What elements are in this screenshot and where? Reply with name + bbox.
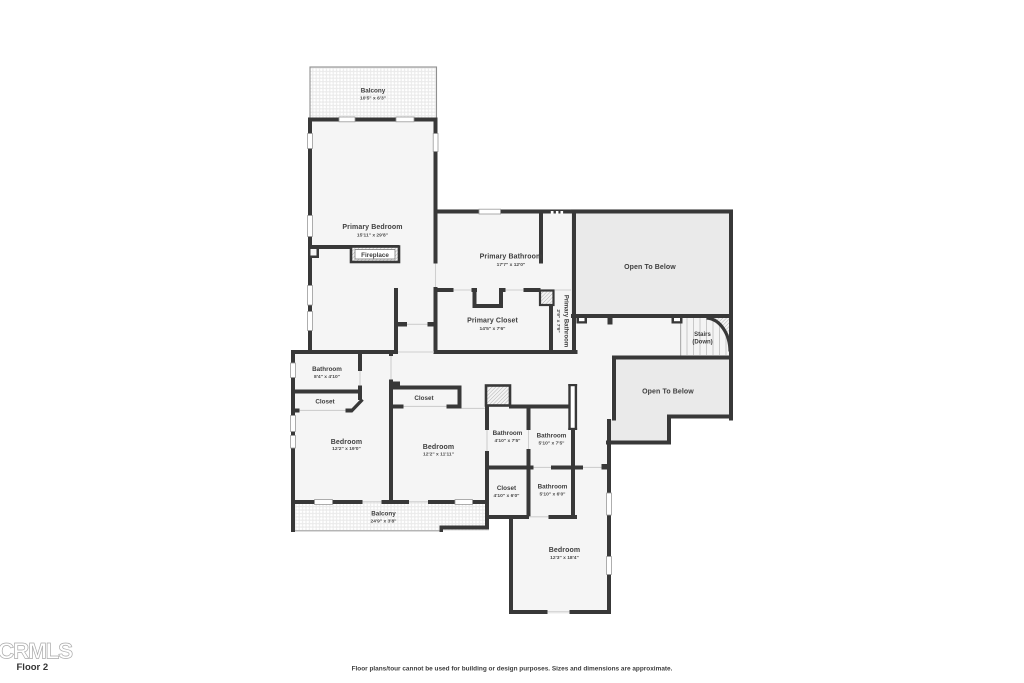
svg-text:Primary Bedroom: Primary Bedroom <box>342 224 402 231</box>
svg-text:12'2" x 19'0": 12'2" x 19'0" <box>332 446 361 452</box>
svg-text:Closet: Closet <box>497 485 517 492</box>
svg-text:4'10" x 7'5": 4'10" x 7'5" <box>494 438 520 444</box>
svg-text:14'5" x 7'6": 14'5" x 7'6" <box>479 326 505 332</box>
svg-text:12'2" x 11'11": 12'2" x 11'11" <box>423 452 454 458</box>
svg-text:24'9" x 3'8": 24'9" x 3'8" <box>370 518 396 524</box>
svg-text:Bathroom: Bathroom <box>538 484 568 491</box>
svg-text:4'10" x 6'0": 4'10" x 6'0" <box>493 493 519 499</box>
svg-text:2'9" x 7'9": 2'9" x 7'9" <box>555 309 561 332</box>
svg-text:Stairs: Stairs <box>694 332 711 338</box>
svg-text:Bathroom: Bathroom <box>537 433 567 440</box>
svg-text:Fireplace: Fireplace <box>361 252 389 259</box>
svg-text:10'5" x 6'3": 10'5" x 6'3" <box>360 95 386 101</box>
svg-text:Bedroom: Bedroom <box>549 547 580 554</box>
svg-text:12'3" x 18'4": 12'3" x 18'4" <box>550 555 579 561</box>
svg-text:8'4" x 4'10": 8'4" x 4'10" <box>314 374 340 380</box>
svg-text:Primary Closet: Primary Closet <box>467 318 518 325</box>
svg-text:Floor 2: Floor 2 <box>17 662 49 673</box>
svg-text:Balcony: Balcony <box>371 511 396 518</box>
svg-text:Bedroom: Bedroom <box>331 439 362 446</box>
svg-text:Closet: Closet <box>315 399 335 406</box>
svg-text:CRMLS: CRMLS <box>0 639 73 664</box>
svg-text:Floor plans/tour cannot be use: Floor plans/tour cannot be used for buil… <box>352 666 673 673</box>
svg-text:Bathroom: Bathroom <box>493 430 523 437</box>
svg-text:15'11" x 29'8": 15'11" x 29'8" <box>357 233 388 239</box>
svg-text:17'7" x 12'0": 17'7" x 12'0" <box>497 262 526 268</box>
svg-text:Open To Below: Open To Below <box>642 389 694 396</box>
svg-text:Balcony: Balcony <box>361 88 386 95</box>
svg-text:Closet: Closet <box>414 395 434 402</box>
svg-text:5'10" x 6'0": 5'10" x 6'0" <box>539 491 565 497</box>
svg-text:Bedroom: Bedroom <box>423 444 454 451</box>
svg-text:Bathroom: Bathroom <box>312 366 342 373</box>
svg-text:5'10" x 7'5": 5'10" x 7'5" <box>538 440 564 446</box>
svg-text:Open To Below: Open To Below <box>624 264 676 271</box>
svg-text:Primary Bathroom: Primary Bathroom <box>562 295 568 347</box>
svg-text:(Down): (Down) <box>692 340 712 346</box>
svg-text:Primary Bathroom: Primary Bathroom <box>480 254 543 261</box>
